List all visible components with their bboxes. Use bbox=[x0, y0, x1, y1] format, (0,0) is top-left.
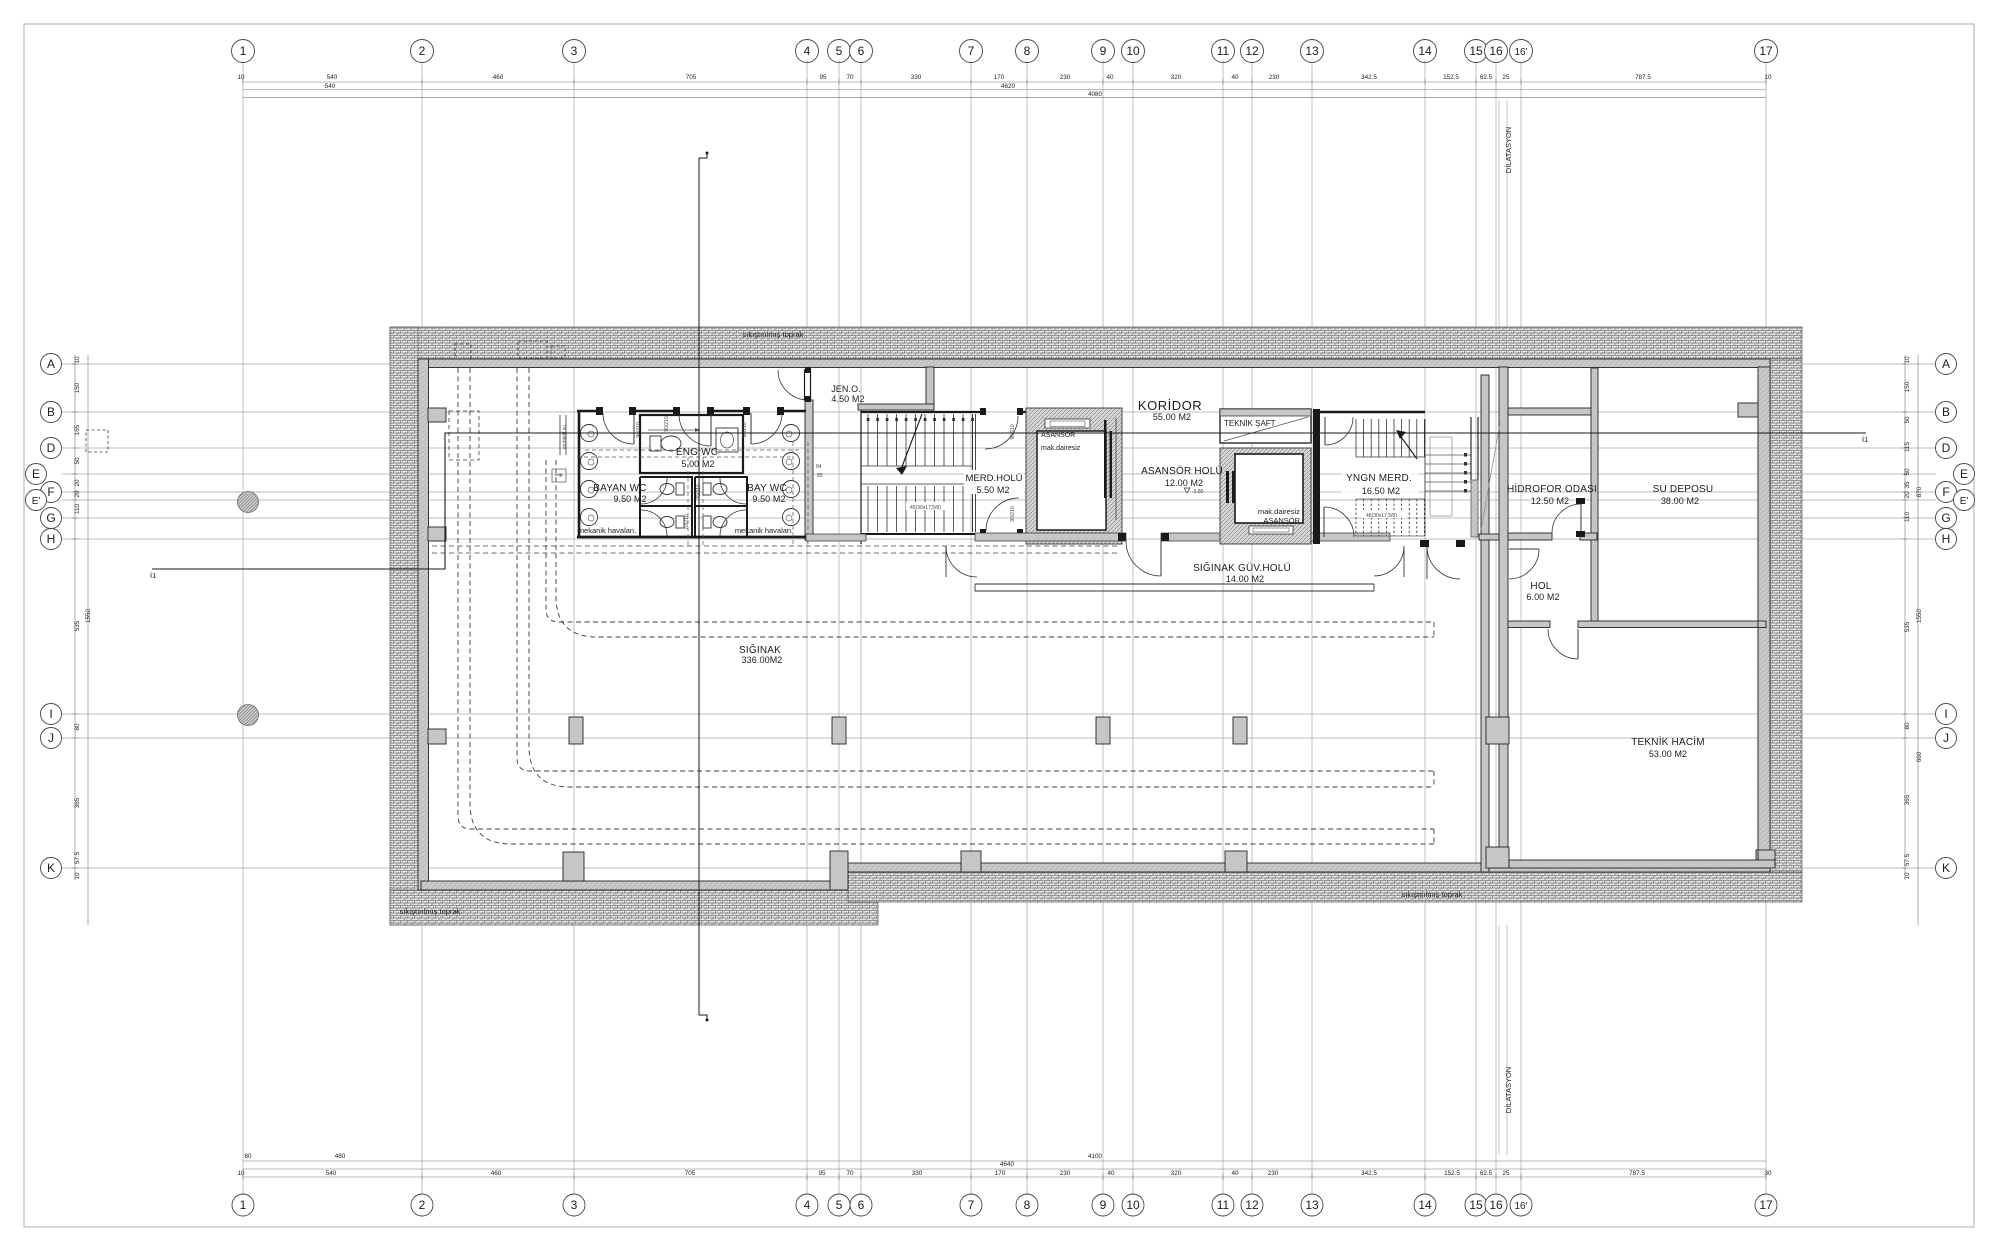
svg-text:E': E' bbox=[1960, 496, 1969, 507]
svg-text:I: I bbox=[49, 707, 52, 721]
svg-text:KORİDOR: KORİDOR bbox=[1138, 398, 1202, 413]
svg-text:10: 10 bbox=[74, 356, 81, 364]
svg-text:70: 70 bbox=[846, 74, 854, 81]
svg-text:G: G bbox=[46, 511, 55, 525]
svg-text:10: 10 bbox=[1904, 356, 1911, 364]
svg-text:13: 13 bbox=[1305, 44, 1319, 58]
svg-text:230: 230 bbox=[1268, 1170, 1279, 1177]
svg-text:150: 150 bbox=[1904, 381, 1911, 392]
svg-text:15: 15 bbox=[1469, 1198, 1483, 1212]
svg-text:MERD.HOLÜ: MERD.HOLÜ bbox=[965, 473, 1022, 484]
svg-text:B: B bbox=[1942, 405, 1950, 419]
svg-text:H: H bbox=[47, 532, 56, 546]
svg-text:10: 10 bbox=[1126, 44, 1140, 58]
svg-text:B: B bbox=[47, 405, 55, 419]
svg-text:20: 20 bbox=[74, 479, 81, 487]
svg-text:muhtelif su: muhtelif su bbox=[562, 425, 568, 449]
svg-text:90/210: 90/210 bbox=[1010, 424, 1016, 440]
svg-text:3: 3 bbox=[571, 44, 578, 58]
svg-text:80: 80 bbox=[74, 723, 81, 731]
svg-text:15: 15 bbox=[1469, 44, 1483, 58]
svg-text:6: 6 bbox=[858, 1198, 865, 1212]
svg-text:1550: 1550 bbox=[85, 609, 92, 624]
svg-text:YNGN MERD.: YNGN MERD. bbox=[1346, 473, 1412, 484]
svg-text:336.00M2: 336.00M2 bbox=[742, 655, 783, 665]
svg-text:535: 535 bbox=[1904, 621, 1911, 632]
svg-text:330: 330 bbox=[911, 74, 922, 81]
svg-text:J: J bbox=[1943, 731, 1949, 745]
svg-text:1550: 1550 bbox=[1916, 609, 1923, 624]
svg-text:170: 170 bbox=[994, 74, 1005, 81]
svg-text:16: 16 bbox=[1489, 44, 1503, 58]
svg-text:mekanik havalan.: mekanik havalan. bbox=[578, 526, 636, 535]
svg-text:40: 40 bbox=[1231, 74, 1239, 81]
svg-text:230: 230 bbox=[1060, 1170, 1071, 1177]
svg-text:365: 365 bbox=[74, 797, 81, 808]
svg-text:A: A bbox=[47, 357, 55, 371]
svg-text:50: 50 bbox=[74, 457, 81, 465]
svg-text:1: 1 bbox=[240, 1198, 247, 1212]
svg-text:8: 8 bbox=[1024, 44, 1031, 58]
svg-text:80: 80 bbox=[244, 1153, 252, 1160]
svg-text:25: 25 bbox=[1502, 74, 1510, 81]
svg-text:230: 230 bbox=[1269, 74, 1280, 81]
svg-text:E: E bbox=[1960, 467, 1968, 481]
svg-text:230: 230 bbox=[1060, 74, 1071, 81]
svg-text:870: 870 bbox=[1916, 486, 1923, 497]
svg-text:90/210: 90/210 bbox=[664, 416, 670, 432]
svg-text:mak.dairesiz: mak.dairesiz bbox=[1041, 445, 1081, 452]
svg-text:8: 8 bbox=[1024, 1198, 1031, 1212]
svg-text:İ1: İ1 bbox=[150, 571, 156, 580]
svg-text:BAY WC: BAY WC bbox=[747, 483, 787, 494]
svg-text:4: 4 bbox=[804, 1198, 811, 1212]
svg-text:2: 2 bbox=[419, 1198, 426, 1212]
svg-text:45(30x17,5/8): 45(30x17,5/8) bbox=[910, 505, 941, 511]
svg-text:14: 14 bbox=[1418, 44, 1432, 58]
svg-text:170: 170 bbox=[995, 1170, 1006, 1177]
svg-text:152.5: 152.5 bbox=[1443, 74, 1459, 81]
svg-text:sıkıştırılmış toprak: sıkıştırılmış toprak bbox=[743, 330, 804, 339]
svg-text:4640: 4640 bbox=[1000, 1161, 1015, 1168]
svg-text:TEKNİK ŞAFT: TEKNİK ŞAFT bbox=[1224, 419, 1276, 428]
svg-text:sıkıştırılmış toprak: sıkıştırılmış toprak bbox=[400, 907, 461, 916]
svg-text:1: 1 bbox=[240, 44, 247, 58]
svg-text:4620: 4620 bbox=[1001, 83, 1016, 90]
svg-text:I: I bbox=[1944, 707, 1947, 721]
svg-text:25: 25 bbox=[1502, 1170, 1510, 1177]
svg-text:4.50 M2: 4.50 M2 bbox=[831, 394, 864, 404]
svg-text:mekanik havalan.: mekanik havalan. bbox=[735, 526, 793, 535]
svg-text:ENG WC: ENG WC bbox=[676, 447, 718, 458]
svg-text:mak.dairesiz: mak.dairesiz bbox=[1258, 507, 1300, 516]
svg-text:9.50 M2: 9.50 M2 bbox=[752, 494, 785, 504]
svg-text:SIĞINAK GÜV.HOLÜ: SIĞINAK GÜV.HOLÜ bbox=[1193, 561, 1291, 574]
svg-text:10: 10 bbox=[1126, 1198, 1140, 1212]
svg-text:16: 16 bbox=[1489, 1198, 1503, 1212]
svg-text:5.50 M2: 5.50 M2 bbox=[976, 485, 1009, 495]
svg-text:165: 165 bbox=[74, 424, 81, 435]
svg-text:320: 320 bbox=[1171, 74, 1182, 81]
svg-text:540: 540 bbox=[327, 74, 338, 81]
svg-text:540: 540 bbox=[325, 83, 336, 90]
svg-text:2: 2 bbox=[419, 44, 426, 58]
svg-text:115: 115 bbox=[1904, 441, 1911, 452]
svg-text:342.5: 342.5 bbox=[1361, 1170, 1377, 1177]
svg-text:85: 85 bbox=[817, 473, 823, 479]
svg-text:705: 705 bbox=[685, 1170, 696, 1177]
svg-text:3: 3 bbox=[571, 1198, 578, 1212]
svg-text:E: E bbox=[32, 467, 40, 481]
svg-text:7: 7 bbox=[968, 1198, 975, 1212]
svg-text:62.5: 62.5 bbox=[1480, 1170, 1493, 1177]
svg-text:K: K bbox=[47, 861, 55, 875]
svg-text:14: 14 bbox=[1418, 1198, 1432, 1212]
svg-text:342.5: 342.5 bbox=[1361, 74, 1377, 81]
svg-text:150: 150 bbox=[74, 382, 81, 393]
svg-text:4080: 4080 bbox=[1088, 91, 1103, 98]
svg-text:460: 460 bbox=[491, 1170, 502, 1177]
svg-text:13: 13 bbox=[1305, 1198, 1319, 1212]
svg-text:HOL: HOL bbox=[1530, 581, 1551, 592]
svg-text:460: 460 bbox=[493, 74, 504, 81]
svg-text:16': 16' bbox=[1514, 1201, 1527, 1212]
svg-text:17: 17 bbox=[1759, 1198, 1773, 1212]
svg-text:40: 40 bbox=[1231, 1170, 1239, 1177]
svg-text:H: H bbox=[1942, 532, 1951, 546]
svg-text:ASANSÖR HOLÜ: ASANSÖR HOLÜ bbox=[1141, 465, 1223, 477]
svg-text:50: 50 bbox=[1904, 416, 1911, 424]
svg-text:80: 80 bbox=[1904, 722, 1911, 730]
svg-text:K: K bbox=[1942, 861, 1950, 875]
svg-text:152.5: 152.5 bbox=[1444, 1170, 1460, 1177]
svg-text:DİLATASYON: DİLATASYON bbox=[1504, 127, 1513, 173]
svg-text:F: F bbox=[47, 485, 54, 499]
svg-text:DİLATASYON: DİLATASYON bbox=[1504, 1067, 1513, 1113]
svg-text:ASANSÖR: ASANSÖR bbox=[1263, 516, 1300, 525]
svg-text:11: 11 bbox=[1217, 1198, 1230, 1212]
svg-text:9.50 M2: 9.50 M2 bbox=[613, 494, 646, 504]
svg-text:57.5: 57.5 bbox=[1904, 853, 1911, 866]
svg-text:4: 4 bbox=[804, 44, 811, 58]
svg-text:53.00 M2: 53.00 M2 bbox=[1649, 749, 1687, 759]
svg-text:787.5: 787.5 bbox=[1629, 1170, 1645, 1177]
svg-text:11: 11 bbox=[1217, 44, 1230, 58]
svg-text:10: 10 bbox=[1764, 74, 1772, 81]
svg-text:10: 10 bbox=[74, 872, 81, 880]
svg-text:12.50 M2: 12.50 M2 bbox=[1531, 496, 1569, 506]
svg-text:12: 12 bbox=[1245, 44, 1259, 58]
svg-text:320: 320 bbox=[1171, 1170, 1182, 1177]
svg-text:6.00 M2: 6.00 M2 bbox=[1526, 592, 1559, 602]
svg-text:660: 660 bbox=[1916, 751, 1923, 762]
svg-text:12: 12 bbox=[1245, 1198, 1259, 1212]
svg-text:JEN.O.: JEN.O. bbox=[831, 384, 861, 394]
svg-text:480: 480 bbox=[335, 1153, 346, 1160]
svg-text:HİDROFOR ODASI: HİDROFOR ODASI bbox=[1507, 482, 1597, 495]
svg-text:16.50 M2: 16.50 M2 bbox=[1362, 486, 1400, 496]
svg-text:535: 535 bbox=[74, 620, 81, 631]
svg-text:9: 9 bbox=[1100, 44, 1107, 58]
svg-text:12.00 M2: 12.00 M2 bbox=[1165, 478, 1203, 488]
svg-text:70/210: 70/210 bbox=[684, 514, 690, 530]
svg-text:6: 6 bbox=[858, 44, 865, 58]
svg-text:14.00 M2: 14.00 M2 bbox=[1226, 574, 1264, 584]
svg-text:D: D bbox=[47, 441, 56, 455]
svg-text:D: D bbox=[1942, 441, 1951, 455]
svg-text:540: 540 bbox=[326, 1170, 337, 1177]
svg-text:40: 40 bbox=[1106, 74, 1114, 81]
svg-text:A: A bbox=[1942, 357, 1950, 371]
svg-text:E': E' bbox=[32, 496, 41, 507]
svg-text:57.5: 57.5 bbox=[74, 851, 81, 864]
svg-text:90/210: 90/210 bbox=[1010, 506, 1016, 522]
svg-text:İ1: İ1 bbox=[1862, 435, 1868, 444]
svg-text:705: 705 bbox=[686, 74, 697, 81]
svg-text:10: 10 bbox=[237, 74, 245, 81]
svg-text:20: 20 bbox=[74, 490, 81, 498]
svg-text:TEKNİK HACİM: TEKNİK HACİM bbox=[1631, 735, 1705, 748]
svg-text:90/210: 90/210 bbox=[636, 422, 642, 438]
svg-text:62.5: 62.5 bbox=[1480, 74, 1493, 81]
svg-text:95: 95 bbox=[819, 74, 827, 81]
svg-text:F: F bbox=[1942, 485, 1949, 499]
svg-text:7: 7 bbox=[968, 44, 975, 58]
svg-text:-3.80: -3.80 bbox=[1192, 489, 1204, 495]
svg-text:J: J bbox=[48, 731, 54, 745]
svg-text:110: 110 bbox=[1904, 511, 1911, 522]
svg-text:4100: 4100 bbox=[1088, 1153, 1103, 1160]
svg-text:55.00 M2: 55.00 M2 bbox=[1153, 412, 1191, 422]
svg-text:5: 5 bbox=[836, 44, 843, 58]
svg-text:365: 365 bbox=[1904, 794, 1911, 805]
svg-text:84: 84 bbox=[816, 464, 822, 470]
svg-text:30: 30 bbox=[1764, 1170, 1772, 1177]
svg-text:ASANSÖR: ASANSÖR bbox=[1041, 431, 1075, 439]
svg-text:110: 110 bbox=[74, 503, 81, 514]
svg-text:SU DEPOSU: SU DEPOSU bbox=[1653, 484, 1714, 495]
svg-text:5: 5 bbox=[836, 1198, 843, 1212]
svg-text:70: 70 bbox=[846, 1170, 854, 1177]
svg-text:90/210: 90/210 bbox=[742, 422, 748, 438]
svg-text:35: 35 bbox=[1904, 481, 1911, 489]
svg-text:G: G bbox=[1941, 511, 1950, 525]
svg-text:5.00 M2: 5.00 M2 bbox=[681, 459, 714, 469]
svg-text:45(30x17,5/8): 45(30x17,5/8) bbox=[1366, 513, 1397, 519]
svg-text:17: 17 bbox=[1759, 44, 1773, 58]
svg-text:330: 330 bbox=[912, 1170, 923, 1177]
svg-text:10: 10 bbox=[1904, 872, 1911, 880]
svg-text:40: 40 bbox=[1107, 1170, 1115, 1177]
svg-text:sıkıştırılmış toprak: sıkıştırılmış toprak bbox=[1402, 890, 1463, 899]
svg-text:38.00 M2: 38.00 M2 bbox=[1661, 496, 1699, 506]
svg-text:20: 20 bbox=[1904, 491, 1911, 499]
svg-text:95: 95 bbox=[818, 1170, 826, 1177]
svg-text:10: 10 bbox=[237, 1170, 245, 1177]
svg-text:BAYAN WC: BAYAN WC bbox=[593, 483, 646, 494]
svg-text:50: 50 bbox=[1904, 468, 1911, 476]
svg-text:9: 9 bbox=[1100, 1198, 1107, 1212]
svg-text:787.5: 787.5 bbox=[1635, 74, 1651, 81]
svg-text:16': 16' bbox=[1514, 47, 1527, 58]
